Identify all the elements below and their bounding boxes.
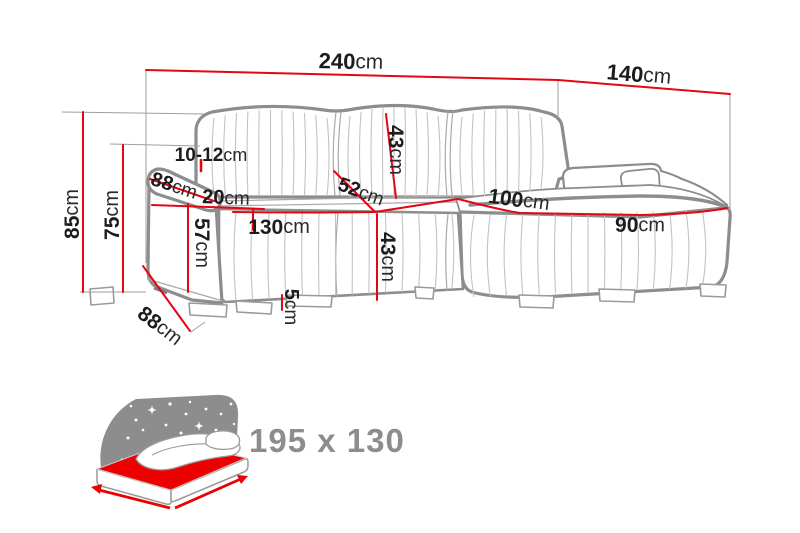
ext-depth-bottom	[191, 322, 205, 332]
foot	[189, 303, 227, 317]
bed-pillow	[206, 431, 240, 449]
sleeping-area: 195 x 130	[91, 395, 405, 508]
foot	[415, 287, 434, 299]
dim-label-seat-front-height: 43cm	[377, 232, 400, 282]
dim-label-leg-height: 5cm	[280, 289, 302, 325]
foot	[599, 289, 635, 302]
dim-label-armrest-width: 20cm	[202, 186, 250, 210]
dim-label-armrest-height: 75cm	[101, 190, 124, 240]
dim-label-total-width: 240cm	[318, 48, 383, 75]
dim-label-backrest-thickness: 10-12cm	[175, 145, 248, 166]
foot	[519, 295, 554, 308]
sofa-illustration	[90, 106, 730, 318]
foot	[236, 301, 272, 314]
arrow-width-head	[91, 484, 102, 494]
foot-rear-left	[90, 287, 114, 305]
dim-label-armrest-front-height: 57cm	[191, 218, 214, 268]
chaise-front-face	[460, 208, 730, 297]
dim-label-total-height: 85cm	[61, 189, 84, 239]
dim-label-seat-length: 130cm	[248, 216, 310, 239]
dim-label-backrest-cushion-height: 43cm	[385, 125, 408, 175]
dim-label-armrest-depth-bottom: 88cm	[133, 302, 187, 351]
foot	[700, 284, 726, 297]
sofa-dimension-diagram: 240cm 140cm 85cm 75cm 10-12cm 88cm 20cm …	[0, 0, 800, 533]
diagram-canvas: 240cm 140cm 85cm 75cm 10-12cm 88cm 20cm …	[0, 0, 800, 533]
sleeping-area-size-label: 195 x 130	[249, 422, 405, 459]
dim-label-chaise-width: 90cm	[615, 213, 665, 237]
bed-icon	[91, 395, 248, 508]
